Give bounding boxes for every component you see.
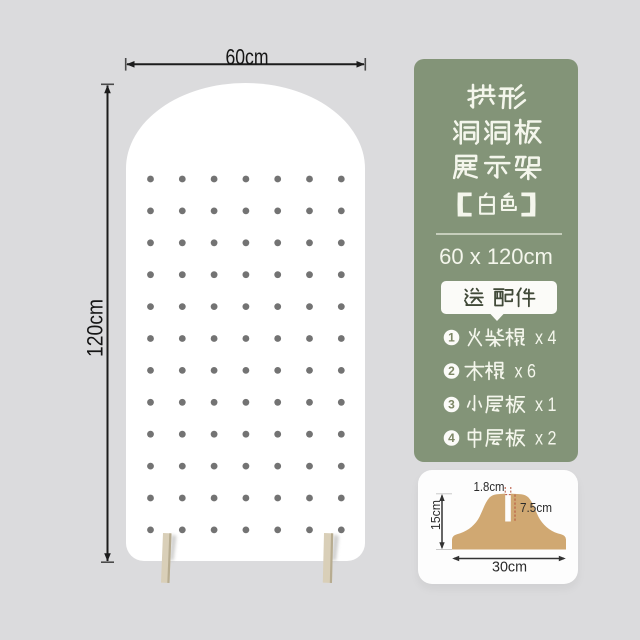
svg-text:x 4: x 4	[535, 328, 557, 349]
svg-text:3: 3	[448, 398, 455, 412]
svg-text:4: 4	[448, 431, 455, 445]
svg-text:x 1: x 1	[535, 395, 557, 416]
svg-text:1: 1	[448, 331, 455, 345]
svg-text:7.5cm: 7.5cm	[520, 500, 552, 515]
svg-text:1.8cm: 1.8cm	[474, 479, 505, 494]
svg-text:120cm: 120cm	[83, 299, 108, 357]
svg-text:30cm: 30cm	[492, 559, 527, 576]
svg-text:2: 2	[448, 364, 455, 378]
svg-text:15cm: 15cm	[428, 500, 443, 530]
svg-text:60 x 120cm: 60 x 120cm	[439, 244, 553, 269]
svg-text:x 6: x 6	[515, 362, 537, 383]
svg-text:60cm: 60cm	[226, 45, 269, 70]
svg-text:x 2: x 2	[535, 429, 557, 450]
